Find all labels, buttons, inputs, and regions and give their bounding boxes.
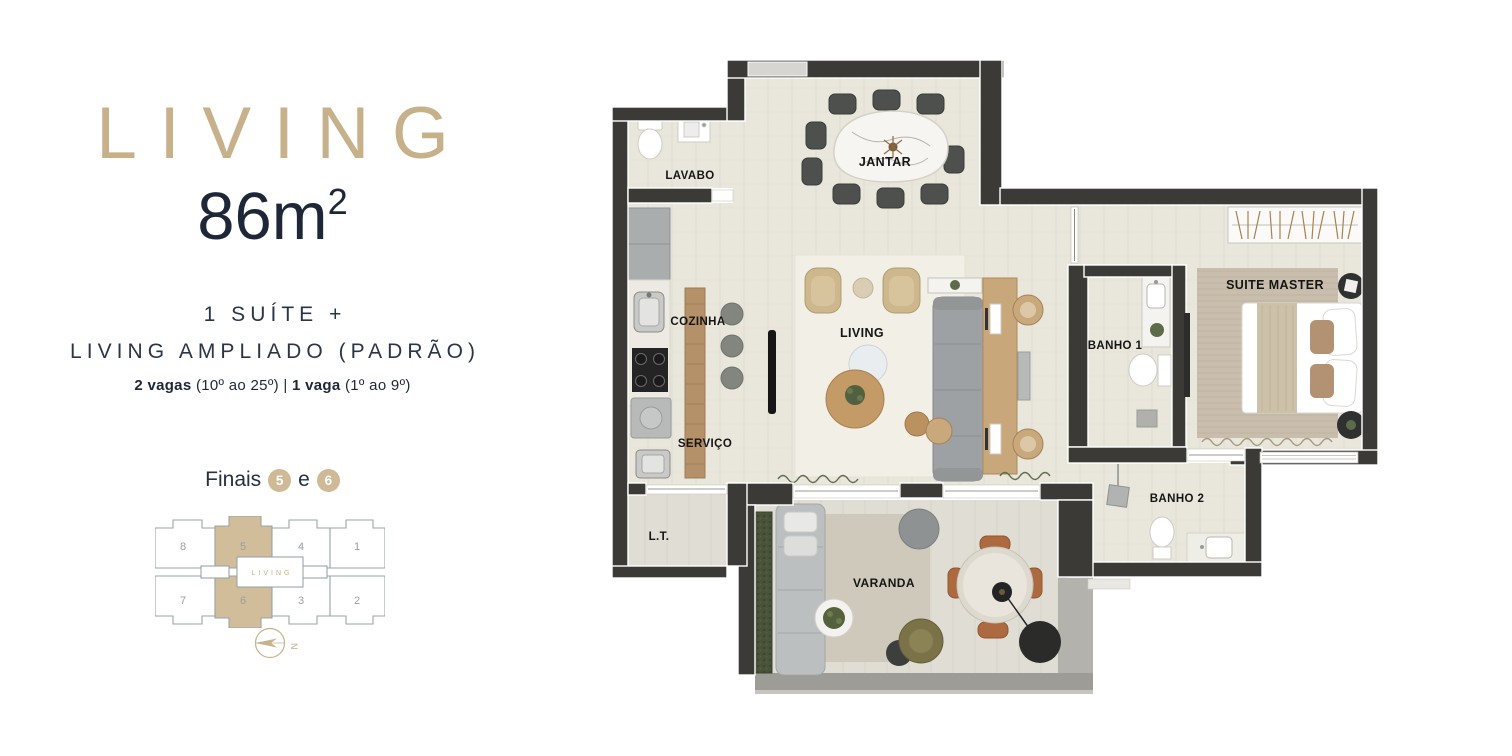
room-label-lavabo: LAVABO <box>665 170 714 182</box>
banho1-door-leaf <box>1184 313 1190 397</box>
parking-bold-2: 1 vaga <box>292 377 341 394</box>
parking-info: 2 vagas (10º ao 25º) | 1 vaga (1º ao 9º) <box>0 377 545 394</box>
info-panel: LIVING 86m2 1 SUÍTE + LIVING AMPLIADO (P… <box>0 0 545 756</box>
plan-title: LIVING <box>0 97 545 170</box>
area-sup: 2 <box>328 181 348 222</box>
room-label-varanda: VARANDA <box>853 576 915 590</box>
cushion <box>1310 320 1334 354</box>
finais-row: Finais 5 e 6 <box>0 468 545 492</box>
round-side-table <box>926 418 952 444</box>
parking-bold-1: 2 vagas <box>134 377 191 394</box>
keyplan-num-1: 1 <box>354 541 360 553</box>
brochure-page: LIVING 86m2 1 SUÍTE + LIVING AMPLIADO (P… <box>0 0 1512 756</box>
cabinet <box>1137 410 1157 427</box>
laptop <box>990 304 1001 334</box>
subtitle-line-1: 1 SUÍTE + <box>0 303 545 327</box>
keyplan-num-8: 8 <box>180 541 186 553</box>
wood-stool <box>905 412 929 436</box>
parking-text-1: (10º ao 25º) | <box>191 377 292 394</box>
room-label-servico: SERVIÇO <box>678 438 732 450</box>
bed-throw <box>1257 303 1297 413</box>
compass-icon: N <box>244 621 314 665</box>
keyplan-num-4: 4 <box>298 541 304 553</box>
room-label-jantar: JANTAR <box>859 155 911 169</box>
shower-head <box>1107 485 1130 508</box>
keyplan: 8 5 4 1 7 6 3 2 LIVING <box>155 516 385 628</box>
unit-badge-6: 6 <box>317 469 340 492</box>
finais-label: Finais <box>205 468 261 492</box>
area-value: 86m <box>197 179 327 254</box>
pouf <box>899 509 939 549</box>
suite-window <box>1260 452 1358 463</box>
sofa <box>933 297 983 481</box>
unit-badge-5: 5 <box>268 469 291 492</box>
parking-text-2: (1º ao 9º) <box>341 377 411 394</box>
toilet <box>1129 354 1157 386</box>
keyplan-num-7: 7 <box>180 595 186 607</box>
toilet <box>1150 517 1174 547</box>
keyplan-num-2: 2 <box>354 595 360 607</box>
laptop <box>990 424 1001 454</box>
room-label-suite: SUITE MASTER <box>1226 278 1324 292</box>
subtitle-line-2: LIVING AMPLIADO (PADRÃO) <box>0 340 545 364</box>
keyplan-num-6: 6 <box>240 595 246 607</box>
tv-panel <box>768 330 776 414</box>
finais-connector: e <box>298 468 310 492</box>
side-table <box>853 278 873 298</box>
suite-furniture <box>1228 207 1365 439</box>
room-label-banho2: BANHO 2 <box>1150 493 1205 505</box>
room-label-lt: L.T. <box>649 531 670 543</box>
desk-cabinet <box>1018 352 1030 400</box>
room-label-living: LIVING <box>840 326 884 340</box>
compass-letter: N <box>289 643 299 650</box>
plan-area: 86m2 <box>0 183 545 250</box>
cushion <box>1310 364 1334 398</box>
floor-lamp-base <box>1019 621 1061 663</box>
room-label-banho1: BANHO 1 <box>1088 340 1143 352</box>
room-label-cozinha: COZINHA <box>670 316 725 328</box>
entry-door <box>748 62 807 76</box>
floor-plan: LAVABO JANTAR COZINHA LIVING SERVIÇO L.T… <box>612 52 1402 697</box>
keyplan-num-3: 3 <box>298 595 304 607</box>
keyplan-living-label: LIVING <box>252 570 293 577</box>
keyplan-num-5: 5 <box>240 541 246 553</box>
